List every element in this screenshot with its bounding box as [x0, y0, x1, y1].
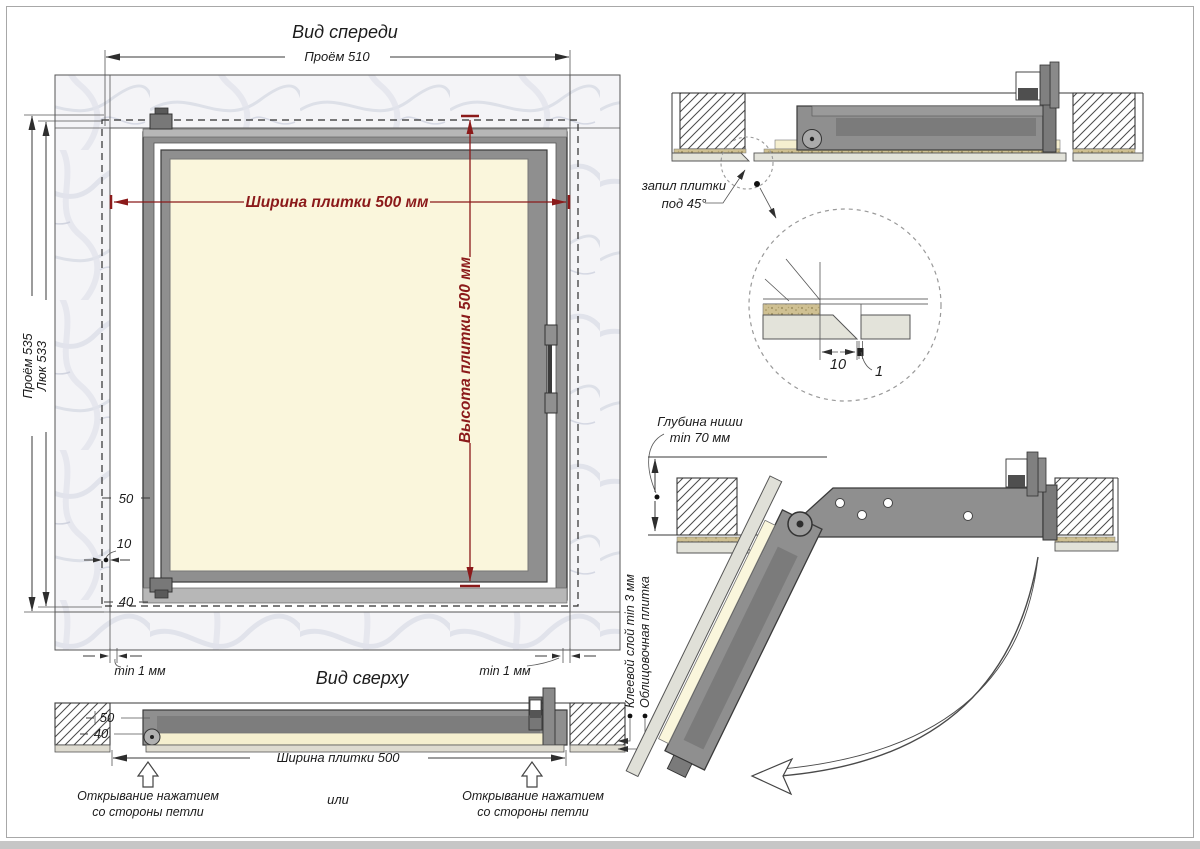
wall-block-right	[570, 703, 625, 745]
dim-opening-height-label: Проём 535	[20, 333, 35, 399]
technical-drawing-canvas: Вид спереди	[0, 0, 1200, 849]
swing-arc	[752, 557, 1038, 794]
gap-right-label: min 1 мм	[479, 664, 531, 678]
wall-block-left-open	[677, 478, 737, 535]
section-closed: запил плитки под 45°	[641, 62, 1143, 218]
drawing-sheet: Вид спереди	[0, 0, 1200, 849]
open-arrow-right	[522, 762, 542, 787]
niche-depth-label-1: Глубина ниши	[657, 414, 742, 429]
frame-arm-open	[800, 485, 1057, 540]
detail-dim-1: 1	[875, 364, 883, 380]
door-body-closed	[797, 99, 1056, 152]
section-open: Глубина ниши min 70 мм	[626, 414, 1118, 801]
gap-left-label: min 1 мм	[114, 664, 166, 678]
door-profile-section	[157, 716, 540, 733]
open-note-left-1: Открывание нажатием	[77, 789, 219, 803]
door-tile-panel	[170, 159, 528, 571]
wall-tile-right-closed	[1073, 153, 1143, 161]
adhesive-layer-section	[150, 733, 543, 745]
top-view-title: Вид сверху	[316, 668, 409, 688]
niche-depth-label-2: min 70 мм	[670, 430, 731, 445]
adhesive-right-open	[1055, 537, 1115, 542]
detail-arrow	[760, 188, 776, 218]
swing-arrowhead	[752, 759, 792, 794]
front-view-title: Вид спереди	[292, 22, 398, 42]
wall-tile-left-section	[55, 745, 110, 752]
dim-10-label: 10	[117, 536, 132, 551]
niche-depth-leader	[649, 434, 664, 493]
open-note-left-2: со стороны петли	[92, 805, 203, 819]
dim-hatch-height-label: Люк 533	[34, 340, 49, 392]
wall-tile-right-open	[1055, 542, 1118, 551]
open-note-right-2: со стороны петли	[477, 805, 588, 819]
dim-50-top-label: 50	[100, 710, 115, 725]
cut-callout-2: под 45°	[662, 196, 707, 211]
dim-40-label: 40	[119, 594, 134, 609]
detail-dim-10: 10	[830, 357, 846, 373]
dim-gap-right: min 1 мм	[479, 648, 596, 678]
frame-bottom-flange	[143, 588, 567, 603]
adhesive-right-closed	[1073, 149, 1135, 153]
front-view: Вид спереди	[20, 22, 620, 678]
wall-block-right-open	[1055, 478, 1113, 535]
dim-50-label: 50	[119, 491, 134, 506]
latch-closed	[1016, 62, 1059, 108]
detail-door-tile	[861, 315, 910, 339]
detail-source-dot	[754, 181, 760, 187]
cut-callout-1: запил плитки	[641, 178, 726, 193]
detail-adhesive	[763, 304, 820, 315]
dim-tile-width-top: Ширина плитки 500	[112, 750, 566, 766]
hinge-pin	[150, 735, 154, 739]
adhesive-left-closed	[674, 149, 746, 153]
door-tile-closed	[754, 153, 1066, 161]
open-arrow-left	[138, 762, 158, 787]
open-note-right-1: Открывание нажатием	[462, 789, 604, 803]
sheet-bottom-edge	[0, 841, 1200, 849]
wall-tile-right-section	[570, 745, 625, 752]
callout-adhesive-label: Клеевой слой min 3 мм	[623, 574, 637, 708]
dim-tile-height-label: Высота плитки 500 мм	[457, 256, 474, 443]
wall-block-left-closed	[680, 93, 745, 149]
callout-facing-tile-label: Облицовочная плитка	[638, 576, 652, 708]
detail-gap-mark	[858, 348, 864, 356]
wall-tile-left-cut45	[672, 153, 749, 161]
dim-opening-width-label: Проём 510	[304, 49, 370, 64]
wall-block-right-closed	[1073, 93, 1135, 149]
dim-gap-left: min 1 мм	[83, 648, 166, 678]
dim-40-top-label: 40	[94, 726, 109, 741]
frame-top-flange	[143, 129, 567, 137]
detail-view: 10 1	[749, 209, 941, 401]
adhesive-left-open	[677, 537, 741, 542]
dim-tile-width-label: Ширина плитки 500 мм	[246, 194, 429, 211]
dim-tile-width-top-label: Ширина плитки 500	[277, 750, 401, 765]
or-label: или	[327, 792, 349, 807]
